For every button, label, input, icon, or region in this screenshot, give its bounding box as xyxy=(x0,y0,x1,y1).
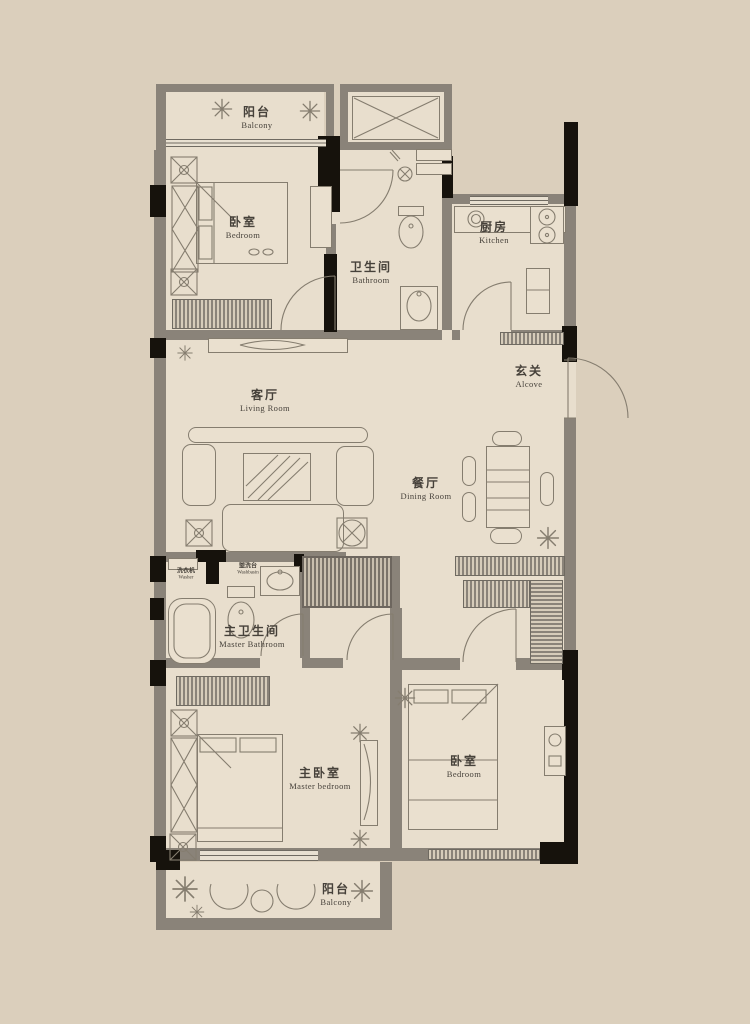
wall-black xyxy=(324,254,337,332)
dining-chair xyxy=(490,528,522,544)
nightstand xyxy=(544,726,566,776)
window-bedroom2 xyxy=(428,849,540,860)
label-balcony-top: 阳台Balcony xyxy=(241,106,272,130)
wall-black xyxy=(562,326,577,362)
wall-segment xyxy=(392,556,400,608)
wall-segment xyxy=(154,150,166,346)
window-master-bedroom xyxy=(200,850,318,861)
wall-black xyxy=(564,122,578,206)
bath-shelf xyxy=(416,149,452,161)
wall-black xyxy=(150,185,166,217)
label-kitchen: 厨房Kitchen xyxy=(479,221,509,245)
wall-black xyxy=(150,660,166,686)
wall-elevator xyxy=(444,84,452,150)
wall-black xyxy=(150,598,164,620)
toilet-tank-master xyxy=(227,586,255,598)
closet-row xyxy=(463,580,530,608)
coffee-table xyxy=(243,453,311,501)
wall-segment xyxy=(564,506,576,652)
dining-chair xyxy=(540,472,554,506)
label-living-room: 客厅Living Room xyxy=(240,389,290,413)
window-kitchen xyxy=(470,196,548,205)
label-washstand: 盥洗台Washbasin xyxy=(237,564,259,577)
wardrobe-master xyxy=(176,676,270,706)
wall-segment xyxy=(156,862,166,924)
mirror-panel xyxy=(360,740,378,826)
cabinet-bedroom-top xyxy=(310,186,332,248)
floor-entry-threshold xyxy=(564,360,576,418)
label-dining-room: 餐厅Dining Room xyxy=(401,477,452,501)
refrigerator xyxy=(526,268,550,314)
label-balcony-bottom: 阳台Balcony xyxy=(320,883,351,907)
wall-segment xyxy=(156,918,392,930)
armchair-left xyxy=(182,444,216,506)
sofa-back xyxy=(188,427,368,443)
bed-master xyxy=(197,734,283,842)
wall-elevator xyxy=(340,84,348,150)
dining-chair xyxy=(462,492,476,522)
floor-plan-canvas: 阳台Balcony 卧室Bedroom 卫生间Bathroom 厨房Kitche… xyxy=(0,0,750,1024)
shoe-cabinet xyxy=(500,332,564,345)
wall-segment xyxy=(452,330,460,340)
wall-segment xyxy=(154,346,166,552)
label-master-bedroom: 主卧室Master bedroom xyxy=(289,767,351,791)
wall-segment xyxy=(156,84,166,150)
wall-black xyxy=(206,562,219,584)
washstand-counter xyxy=(260,566,300,596)
wall-black xyxy=(196,550,226,562)
sofa-main xyxy=(222,504,344,552)
label-bathroom: 卫生间Bathroom xyxy=(350,261,392,285)
closet-column xyxy=(530,580,563,664)
wall-segment xyxy=(380,862,392,930)
wall-segment xyxy=(302,658,343,668)
wall-segment xyxy=(564,418,576,506)
label-bedroom-top: 卧室Bedroom xyxy=(226,216,260,240)
tv-console xyxy=(208,338,348,353)
wall-black xyxy=(564,680,578,850)
label-bedroom-2: 卧室Bedroom xyxy=(447,755,481,779)
wall-segment xyxy=(156,84,334,92)
armchair-right xyxy=(336,446,374,506)
label-laundry: 洗衣机Washer xyxy=(177,569,195,582)
stove xyxy=(530,206,564,244)
closet-row xyxy=(455,556,565,576)
bathtub xyxy=(168,598,216,664)
wall-black xyxy=(156,850,180,870)
dining-chair xyxy=(462,456,476,486)
wall-black xyxy=(150,338,166,358)
wall-black xyxy=(150,556,166,582)
wall-elevator xyxy=(340,84,452,92)
wall-segment xyxy=(390,608,402,848)
label-master-bathroom: 主卫生间Master Bathroom xyxy=(219,625,285,649)
dining-chair xyxy=(492,431,522,446)
toilet-tank xyxy=(398,206,424,216)
basin-cabinet-bathroom xyxy=(400,286,438,330)
dining-table xyxy=(486,446,530,528)
wall-black xyxy=(562,650,578,680)
elevator-shaft-icon xyxy=(352,96,440,140)
dresser-bedroom-top xyxy=(172,299,272,329)
bath-shelf xyxy=(416,163,452,175)
wall-segment xyxy=(334,330,442,340)
window-balcony-top xyxy=(166,139,326,147)
hallway-cabinet xyxy=(302,556,392,608)
wall-segment xyxy=(402,658,460,670)
label-foyer: 玄关Alcove xyxy=(515,365,543,389)
